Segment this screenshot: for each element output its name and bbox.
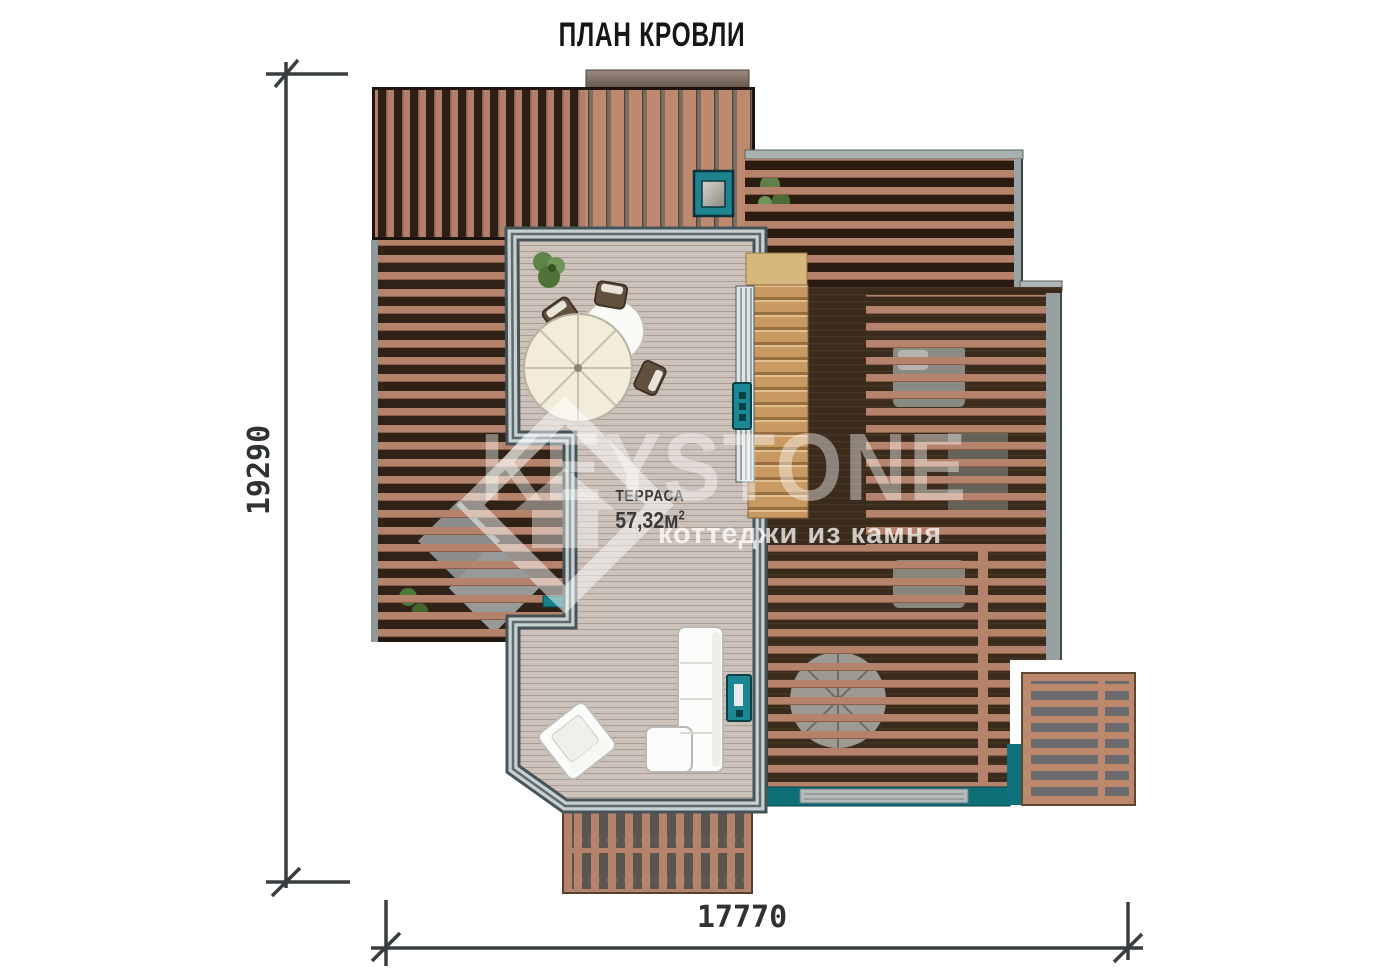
bottom-roof-section: [563, 803, 752, 893]
parasol-umbrella: [524, 314, 632, 422]
pool-strip: [757, 787, 1010, 806]
outdoor-chair: [594, 281, 628, 310]
chimney-skylight: [694, 171, 733, 216]
dimension-bottom-label: 17770: [662, 900, 822, 935]
dimension-left-label: 19290: [240, 420, 280, 520]
watermark-tagline: коттеджи из камня: [650, 518, 950, 551]
watermark-brand: KEYSTONE: [480, 420, 930, 516]
roof-plan-page: ПЛАН КРОВЛИ 19290 17770 ТЕРРАСА 57,32м2 …: [0, 0, 1400, 976]
page-title: ПЛАН КРОВЛИ: [544, 16, 760, 55]
pergola-bottom-right: [1007, 673, 1135, 805]
door-handle-lower: [727, 675, 751, 721]
